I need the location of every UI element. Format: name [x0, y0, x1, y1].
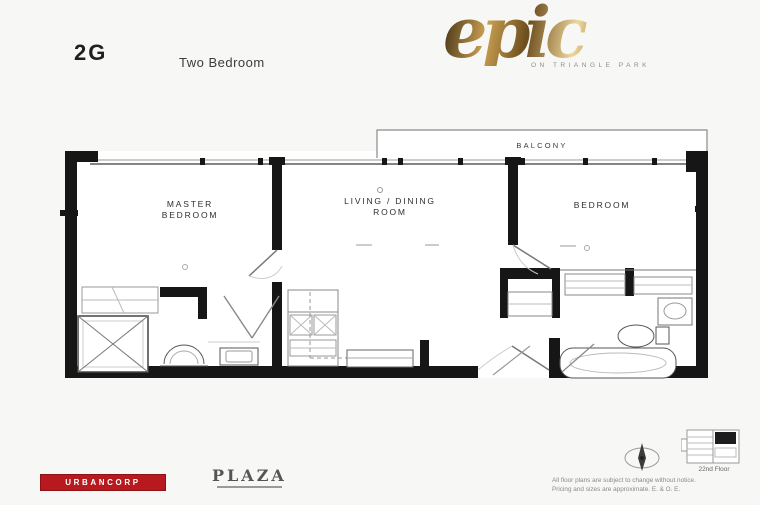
disclaimer-line-1: All floor plans are subject to change wi…	[552, 477, 750, 486]
living-dining-label-line1: LIVING / DINING	[344, 196, 436, 206]
keyplan-diagram	[681, 425, 749, 467]
compass-icon	[617, 440, 667, 474]
master-bedroom-label-line1: MASTER	[167, 199, 213, 209]
bedroom-label: BEDROOM	[574, 200, 631, 210]
living-dining-label-line2: ROOM	[373, 207, 407, 217]
floorplan-page: 2G Two Bedroom epic ON TRIANGLE PARK BAL…	[0, 0, 760, 505]
floorplan-drawing: BALCONY	[60, 120, 715, 390]
plaza-logo-rule	[217, 486, 282, 488]
shower	[78, 316, 148, 372]
bathtub	[560, 348, 676, 378]
balcony-label: BALCONY	[516, 141, 567, 150]
kitchen-island	[347, 350, 413, 367]
keyplan-unit-highlight	[715, 432, 736, 444]
unit-code: 2G	[74, 40, 107, 66]
disclaimer-line-2: Pricing and sizes are approximate. E. & …	[552, 486, 750, 495]
plaza-logo: PLAZA	[212, 466, 287, 488]
epic-brand-logo: epic ON TRIANGLE PARK	[443, 0, 733, 69]
urbancorp-logo: URBANCORP	[40, 474, 166, 491]
keyplan-floor-label: 22nd Floor	[678, 466, 750, 473]
plaza-logo-text: PLAZA	[212, 466, 287, 485]
unit-type-label: Two Bedroom	[179, 55, 265, 70]
epic-logo-text: epic	[443, 0, 733, 66]
kitchen-appliances	[288, 290, 338, 366]
unit-floor-area	[65, 151, 708, 378]
disclaimer-text: All floor plans are subject to change wi…	[552, 477, 750, 494]
epic-logo-tagline: ON TRIANGLE PARK	[531, 62, 733, 69]
master-bedroom-label-line2: BEDROOM	[162, 210, 219, 220]
